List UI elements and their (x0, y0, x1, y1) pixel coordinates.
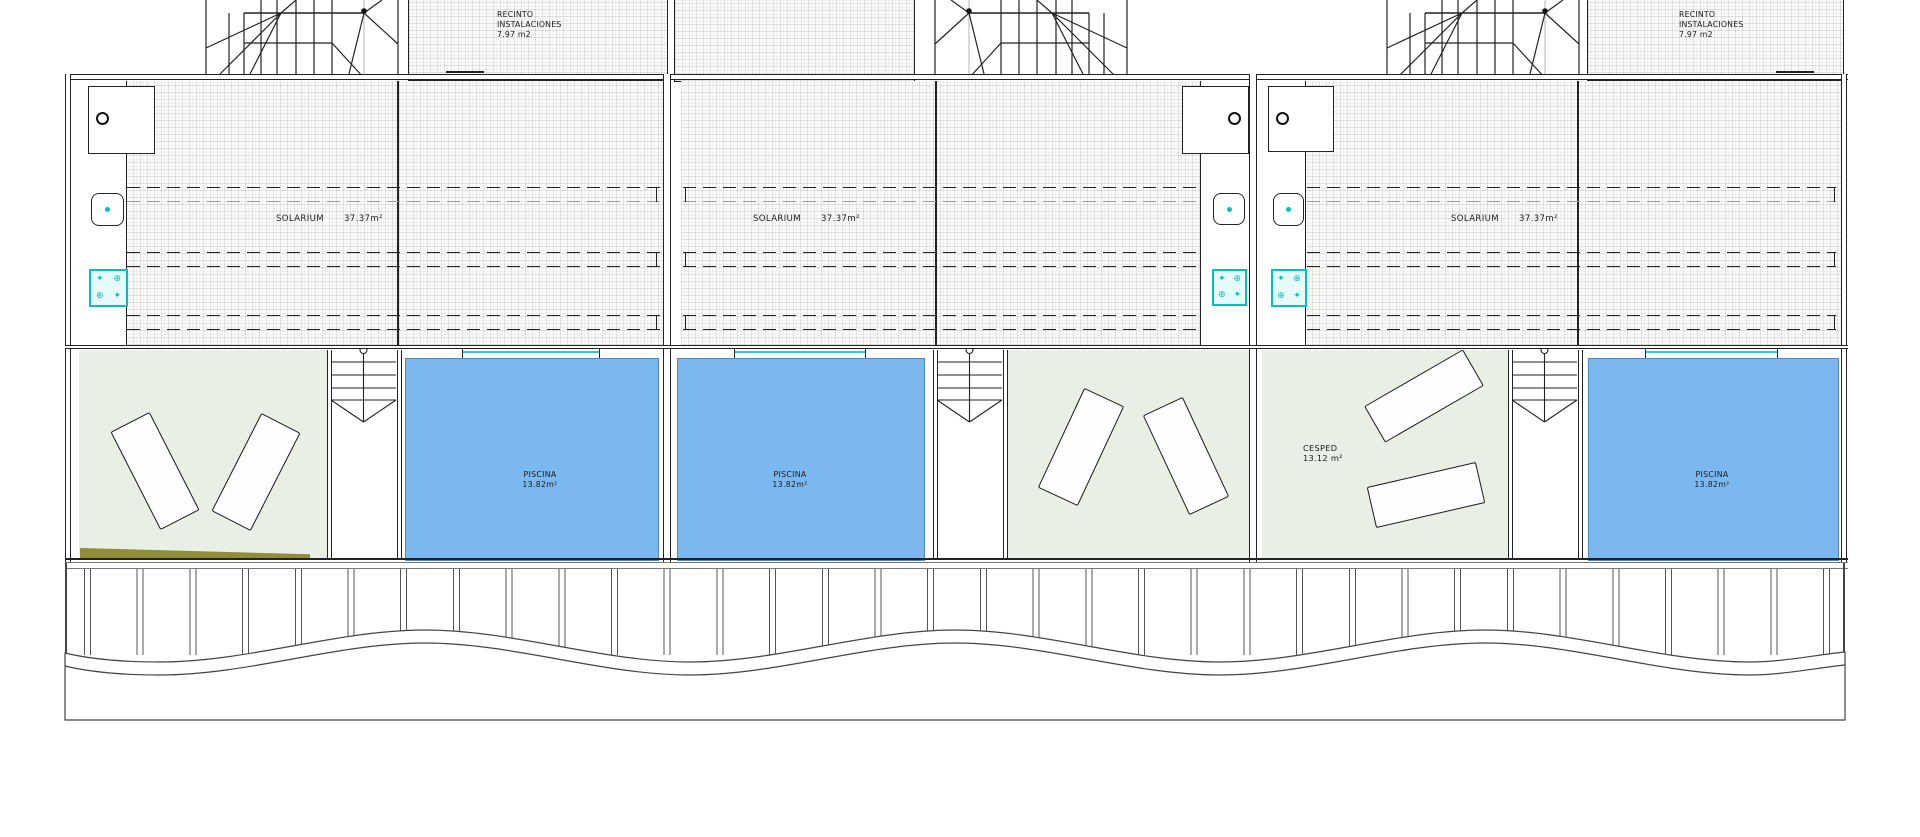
floor-plan: RECINTO INSTALACIONES 7.97 m2 RECINTO IN… (0, 0, 1920, 837)
break-line-wave (0, 0, 1920, 837)
